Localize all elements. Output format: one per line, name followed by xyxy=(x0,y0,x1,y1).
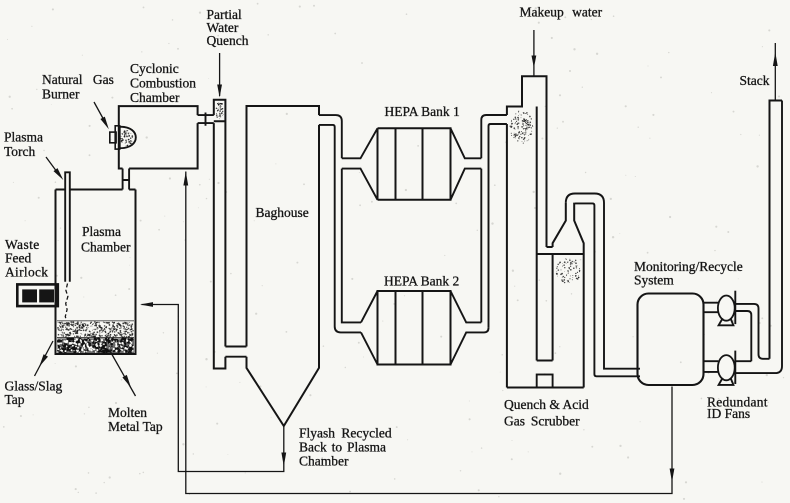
svg-text:Quench: Quench xyxy=(207,33,249,48)
svg-text:ID Fans: ID Fans xyxy=(707,406,750,421)
svg-text:Combustion: Combustion xyxy=(130,76,196,91)
svg-text:Molten: Molten xyxy=(108,405,147,420)
svg-text:Baghouse: Baghouse xyxy=(256,205,309,220)
svg-text:Back to Plasma: Back to Plasma xyxy=(299,440,386,455)
svg-text:Quench & Acid: Quench & Acid xyxy=(504,397,589,412)
svg-text:HEPA Bank 2: HEPA Bank 2 xyxy=(384,274,459,289)
svg-text:Makeup water: Makeup water xyxy=(520,5,603,20)
svg-text:Torch: Torch xyxy=(4,144,36,159)
svg-text:Feed: Feed xyxy=(5,251,31,266)
svg-text:Chamber: Chamber xyxy=(130,90,180,105)
svg-text:Chamber: Chamber xyxy=(299,454,349,469)
svg-text:HEPA Bank 1: HEPA Bank 1 xyxy=(385,104,460,119)
svg-text:Plasma: Plasma xyxy=(82,224,121,239)
svg-text:Cyclonic: Cyclonic xyxy=(130,61,179,76)
svg-text:System: System xyxy=(634,273,674,288)
svg-text:Natural Gas: Natural Gas xyxy=(42,72,114,87)
svg-text:Flyash Recycled: Flyash Recycled xyxy=(299,426,392,441)
svg-text:Tap: Tap xyxy=(5,392,25,407)
svg-text:Airlock: Airlock xyxy=(5,265,48,280)
svg-text:Gas Scrubber: Gas Scrubber xyxy=(504,414,580,429)
svg-text:Stack: Stack xyxy=(740,73,770,88)
svg-text:Chamber: Chamber xyxy=(81,240,131,255)
svg-text:Metal Tap: Metal Tap xyxy=(108,419,163,434)
svg-text:Plasma: Plasma xyxy=(4,130,43,145)
svg-text:Burner: Burner xyxy=(42,87,80,102)
